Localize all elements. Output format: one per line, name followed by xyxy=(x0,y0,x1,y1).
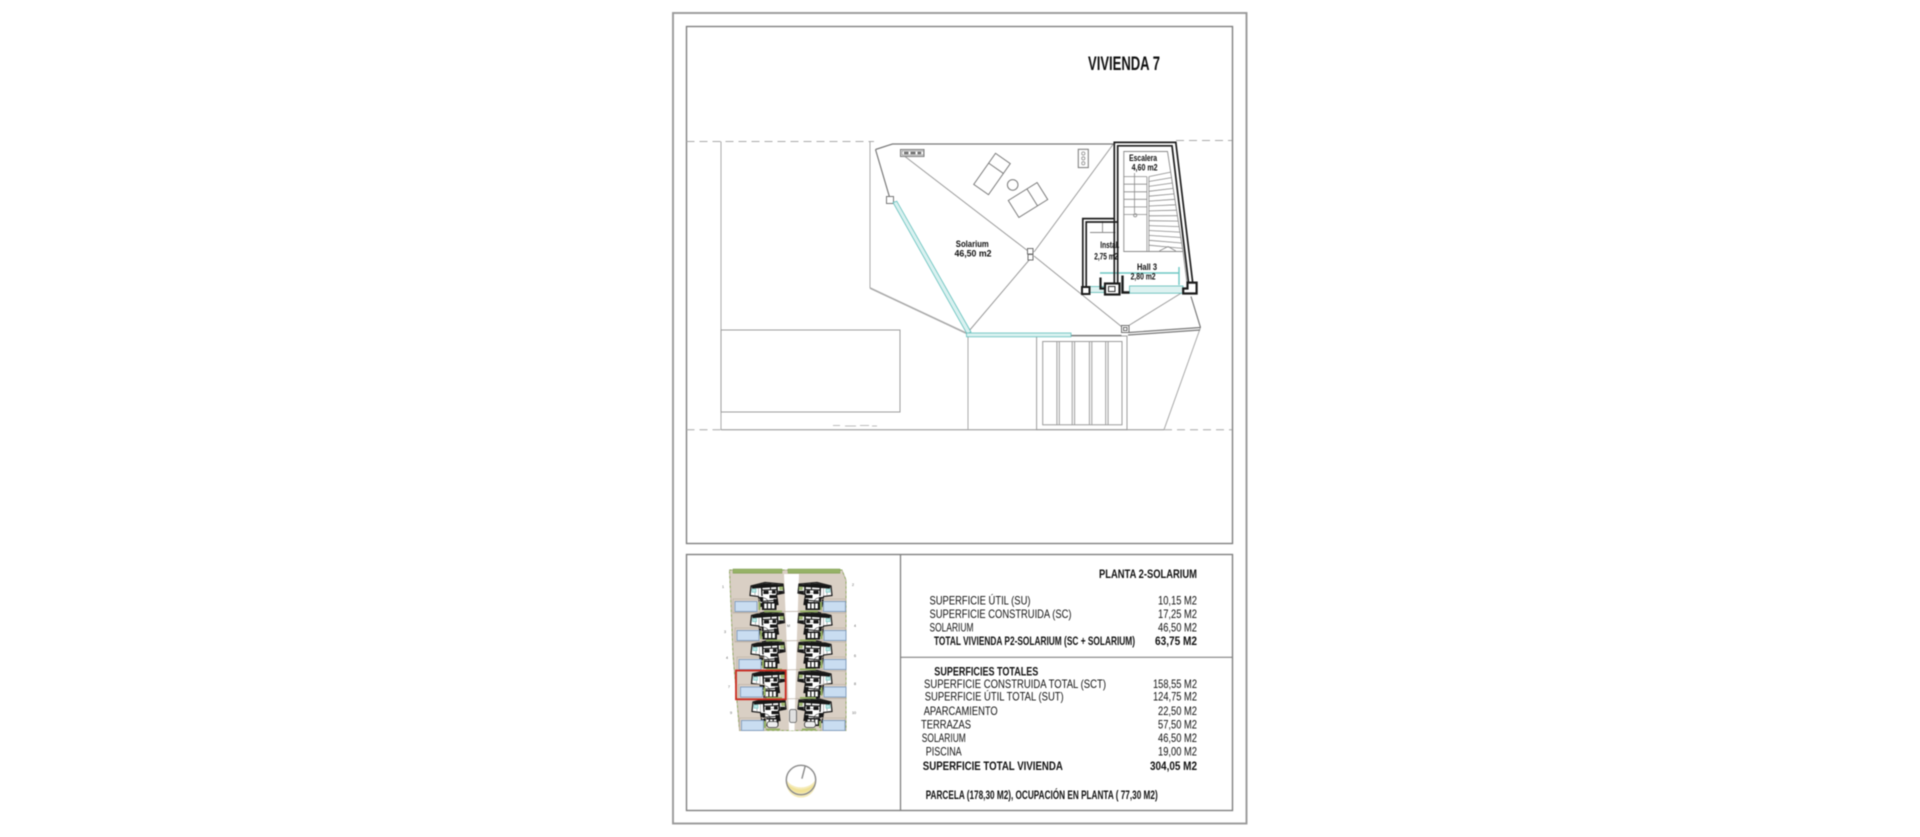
svg-text:1: 1 xyxy=(722,585,724,589)
svg-text:4: 4 xyxy=(854,624,856,628)
svg-text:46,50 M2: 46,50 M2 xyxy=(1158,620,1197,634)
svg-text:SUPERFICIE TOTAL VIVIENDA: SUPERFICIE TOTAL VIVIENDA xyxy=(923,759,1063,773)
svg-text:PLANTA 2-SOLARIUM: PLANTA 2-SOLARIUM xyxy=(1099,567,1197,581)
svg-text:6: 6 xyxy=(854,654,856,658)
svg-text:VIVIENDA 7: VIVIENDA 7 xyxy=(1088,54,1160,75)
svg-text:TOTAL VIVIENDA P2-SOLARIUM (SC: TOTAL VIVIENDA P2-SOLARIUM (SC + SOLARIU… xyxy=(934,634,1135,648)
svg-text:10,15 M2: 10,15 M2 xyxy=(1158,593,1197,607)
svg-text:TERRAZAS: TERRAZAS xyxy=(921,718,971,732)
svg-text:2: 2 xyxy=(852,583,854,587)
svg-text:46,50 M2: 46,50 M2 xyxy=(1158,731,1197,745)
svg-text:4: 4 xyxy=(726,656,728,660)
svg-text:7: 7 xyxy=(728,685,730,689)
svg-text:17,25 M2: 17,25 M2 xyxy=(1158,607,1197,621)
svg-text:2,75 m2: 2,75 m2 xyxy=(1094,252,1118,262)
svg-text:63,75 M2: 63,75 M2 xyxy=(1155,634,1197,648)
svg-text:PISCINA: PISCINA xyxy=(926,745,962,759)
svg-text:SUPERFICIE ÚTIL TOTAL (SUT): SUPERFICIE ÚTIL TOTAL (SUT) xyxy=(925,689,1064,704)
svg-text:19,00 M2: 19,00 M2 xyxy=(1158,745,1197,759)
svg-text:2,80 m2: 2,80 m2 xyxy=(1131,272,1156,282)
svg-text:M: M xyxy=(787,624,790,628)
svg-text:22,50 M2: 22,50 M2 xyxy=(1158,704,1197,718)
svg-text:124,75 M2: 124,75 M2 xyxy=(1153,690,1197,704)
svg-text:SUPERFICIE ÚTIL (SU): SUPERFICIE ÚTIL (SU) xyxy=(930,592,1031,607)
svg-text:SOLARIUM: SOLARIUM xyxy=(930,620,974,634)
svg-text:8: 8 xyxy=(854,682,856,686)
svg-text:3: 3 xyxy=(724,630,726,634)
svg-text:304,05 M2: 304,05 M2 xyxy=(1150,759,1197,773)
svg-text:SUPERFICIE CONSTRUIDA (SC): SUPERFICIE CONSTRUIDA (SC) xyxy=(930,607,1072,621)
svg-text:Instal.: Instal. xyxy=(1100,240,1119,250)
svg-text:SOLARIUM: SOLARIUM xyxy=(922,731,966,745)
svg-text:PARCELA (178,30 M2), OCUPACIÓ: PARCELA (178,30 M2), OCUPACIÓN EN PLANTA… xyxy=(926,787,1158,802)
svg-text:4,60 m2: 4,60 m2 xyxy=(1132,162,1158,172)
svg-text:9: 9 xyxy=(730,711,732,715)
svg-text:APARCAMIENTO: APARCAMIENTO xyxy=(924,704,998,718)
svg-text:10: 10 xyxy=(852,711,856,715)
svg-text:46,50 m2: 46,50 m2 xyxy=(955,249,992,260)
svg-text:57,50 M2: 57,50 M2 xyxy=(1158,718,1197,732)
